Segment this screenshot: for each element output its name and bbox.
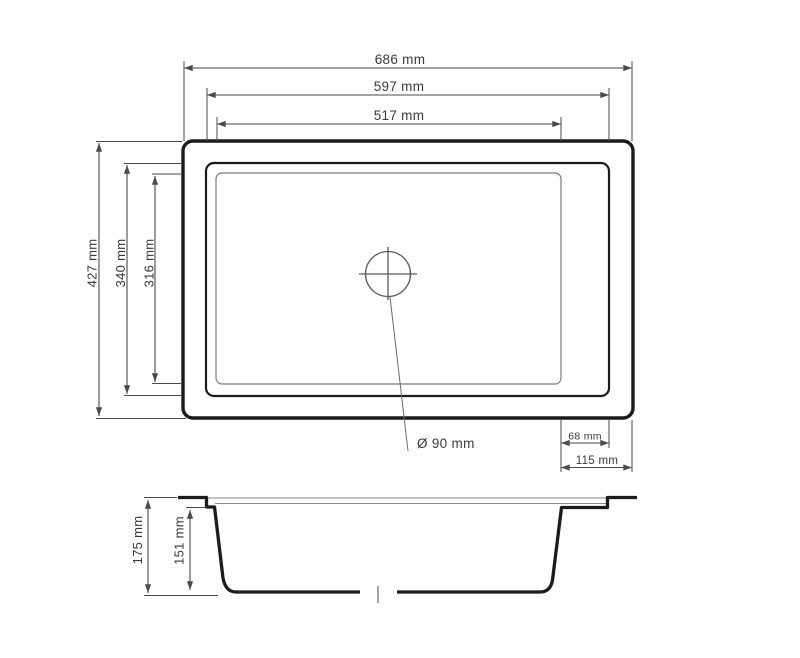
dim-edge-offsets: 68 mm 115 mm xyxy=(561,420,632,472)
dim-edge-offset-large-label: 115 mm xyxy=(576,455,619,467)
sink-dimension-diagram: 686 mm 597 mm 517 mm 427 mm xyxy=(0,0,800,658)
top-view: 686 mm 597 mm 517 mm 427 mm xyxy=(85,52,634,472)
drain-diameter-label: Ø 90 mm xyxy=(417,436,475,451)
section-profile-right xyxy=(397,498,637,593)
dim-overall-depth-label: 427 mm xyxy=(85,239,100,288)
section-profile-left xyxy=(178,498,360,593)
dim-rim-width-label: 597 mm xyxy=(374,79,425,94)
dim-basin-width: 517 mm xyxy=(217,108,561,141)
dim-edge-offset-small-label: 68 mm xyxy=(568,431,602,443)
dim-overall-width-label: 686 mm xyxy=(375,52,426,67)
technical-drawing-canvas: 686 mm 597 mm 517 mm 427 mm xyxy=(0,0,800,658)
dim-overall-height-label: 175 mm xyxy=(130,516,145,565)
dim-basin-width-label: 517 mm xyxy=(374,108,425,123)
dim-basin-depth-label: 316 mm xyxy=(142,239,157,288)
sink-outline-group xyxy=(183,141,633,418)
dim-overall-depth: 427 mm xyxy=(85,142,187,419)
dim-basin-height-label: 151 mm xyxy=(172,516,187,565)
section-view: 175 mm 151 mm xyxy=(130,498,637,604)
dim-overall-width: 686 mm xyxy=(184,52,632,141)
dim-basin-height: 151 mm xyxy=(172,508,208,591)
dim-basin-depth: 316 mm xyxy=(142,174,182,384)
dim-rim-depth-label: 340 mm xyxy=(113,239,128,288)
